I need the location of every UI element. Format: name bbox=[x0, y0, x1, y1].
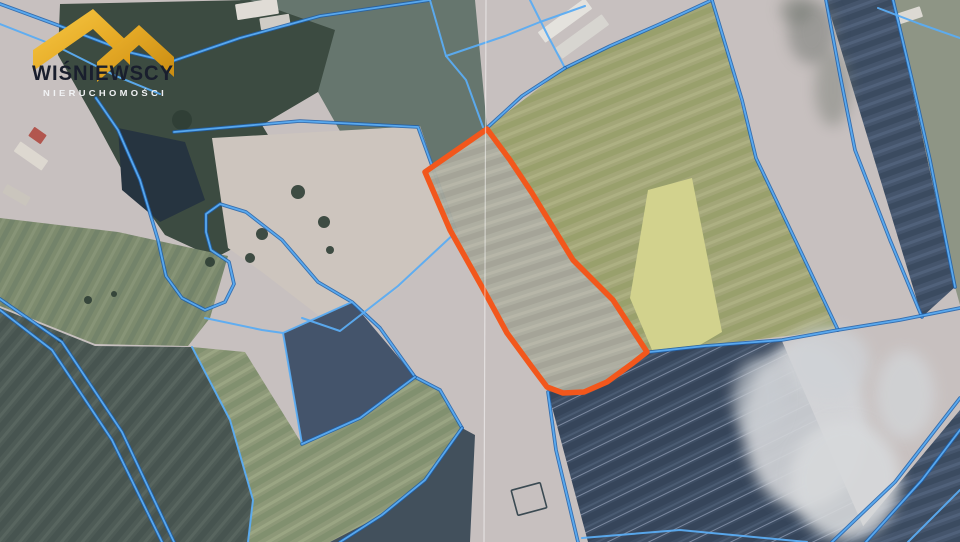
satellite-map: WIŚNIEWSCY NIERUCHOMOŚCI bbox=[0, 0, 960, 542]
tree bbox=[84, 296, 92, 304]
cloud bbox=[732, 358, 784, 438]
tree bbox=[172, 110, 192, 130]
tree bbox=[326, 246, 334, 254]
logo-title: WIŚNIEWSCY bbox=[32, 61, 174, 85]
tree bbox=[111, 291, 117, 297]
cloud bbox=[815, 50, 851, 126]
map-canvas: WIŚNIEWSCY NIERUCHOMOŚCI bbox=[0, 0, 960, 542]
logo-subtitle: NIERUCHOMOŚCI bbox=[43, 87, 167, 98]
tree bbox=[245, 253, 255, 263]
tree bbox=[318, 216, 330, 228]
tree bbox=[205, 257, 215, 267]
tree bbox=[291, 185, 305, 199]
cloud bbox=[875, 350, 935, 440]
